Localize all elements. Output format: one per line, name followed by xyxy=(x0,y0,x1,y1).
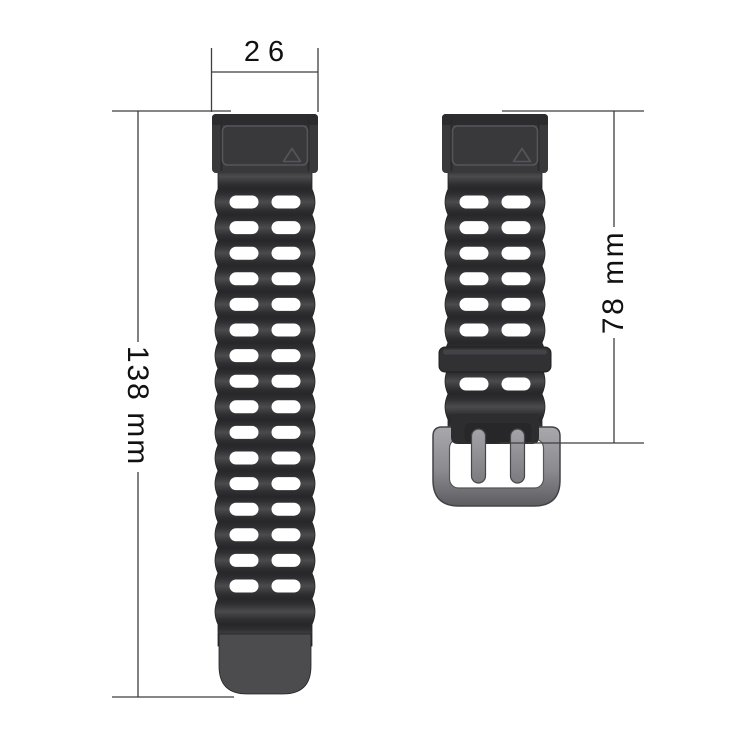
strap-hole xyxy=(230,272,259,285)
strap-hole xyxy=(230,528,259,541)
strap-hole xyxy=(230,196,259,209)
short-strap xyxy=(433,114,560,506)
strap-hole xyxy=(230,221,259,234)
connector-top-band xyxy=(442,114,548,125)
strap-hole xyxy=(230,580,259,593)
buckle-prong-left xyxy=(472,429,486,483)
long-strap-tip xyxy=(219,634,311,694)
strap-hole xyxy=(460,324,489,337)
dimension-label-short-strap: 78 mm xyxy=(597,230,631,334)
strap-hole xyxy=(272,298,301,311)
strap-hole xyxy=(272,375,301,388)
strap-hole xyxy=(272,477,301,490)
strap-hole xyxy=(272,580,301,593)
strap-hole xyxy=(230,452,259,465)
strap-hole xyxy=(460,221,489,234)
strap-hole xyxy=(502,196,531,209)
strap-hole xyxy=(272,221,301,234)
strap-hole xyxy=(502,221,531,234)
strap-hole xyxy=(230,426,259,439)
strap-hole xyxy=(230,349,259,362)
strap-hole xyxy=(272,452,301,465)
dimension-lines xyxy=(112,48,644,697)
strap-hole xyxy=(230,324,259,337)
dimension-label-width: 26 xyxy=(206,36,322,69)
strap-hole xyxy=(460,378,489,391)
strap-hole xyxy=(272,400,301,413)
long-strap xyxy=(212,114,318,694)
strap-hole xyxy=(230,400,259,413)
diagram-canvas: 26 138 mm 78 mm xyxy=(0,0,750,750)
strap-hole xyxy=(272,503,301,516)
keeper-loop xyxy=(439,347,551,372)
strap-hole xyxy=(502,247,531,260)
strap-hole xyxy=(230,375,259,388)
strap-hole xyxy=(272,349,301,362)
strap-hole xyxy=(460,298,489,311)
strap-hole xyxy=(230,477,259,490)
quick-release-connector-left xyxy=(212,114,318,173)
strap-hole xyxy=(502,324,531,337)
dimension-label-long-strap: 138 mm xyxy=(120,346,154,466)
strap-illustration xyxy=(0,0,750,750)
strap-hole xyxy=(230,554,259,567)
strap-hole xyxy=(230,503,259,516)
connector-top-band xyxy=(212,114,318,125)
strap-hole xyxy=(502,298,531,311)
buckle-prong-right xyxy=(511,429,525,483)
quick-release-connector-right xyxy=(442,114,548,173)
strap-hole xyxy=(460,196,489,209)
strap-hole xyxy=(502,378,531,391)
strap-hole xyxy=(230,247,259,260)
strap-hole xyxy=(272,528,301,541)
strap-hole xyxy=(502,272,531,285)
buckle xyxy=(433,414,560,506)
strap-hole xyxy=(272,196,301,209)
strap-hole xyxy=(230,298,259,311)
strap-hole xyxy=(272,554,301,567)
strap-hole xyxy=(460,247,489,260)
strap-hole xyxy=(272,272,301,285)
strap-hole xyxy=(460,272,489,285)
strap-hole xyxy=(272,426,301,439)
strap-hole xyxy=(272,247,301,260)
strap-hole xyxy=(272,324,301,337)
buckle-opening xyxy=(450,439,544,488)
